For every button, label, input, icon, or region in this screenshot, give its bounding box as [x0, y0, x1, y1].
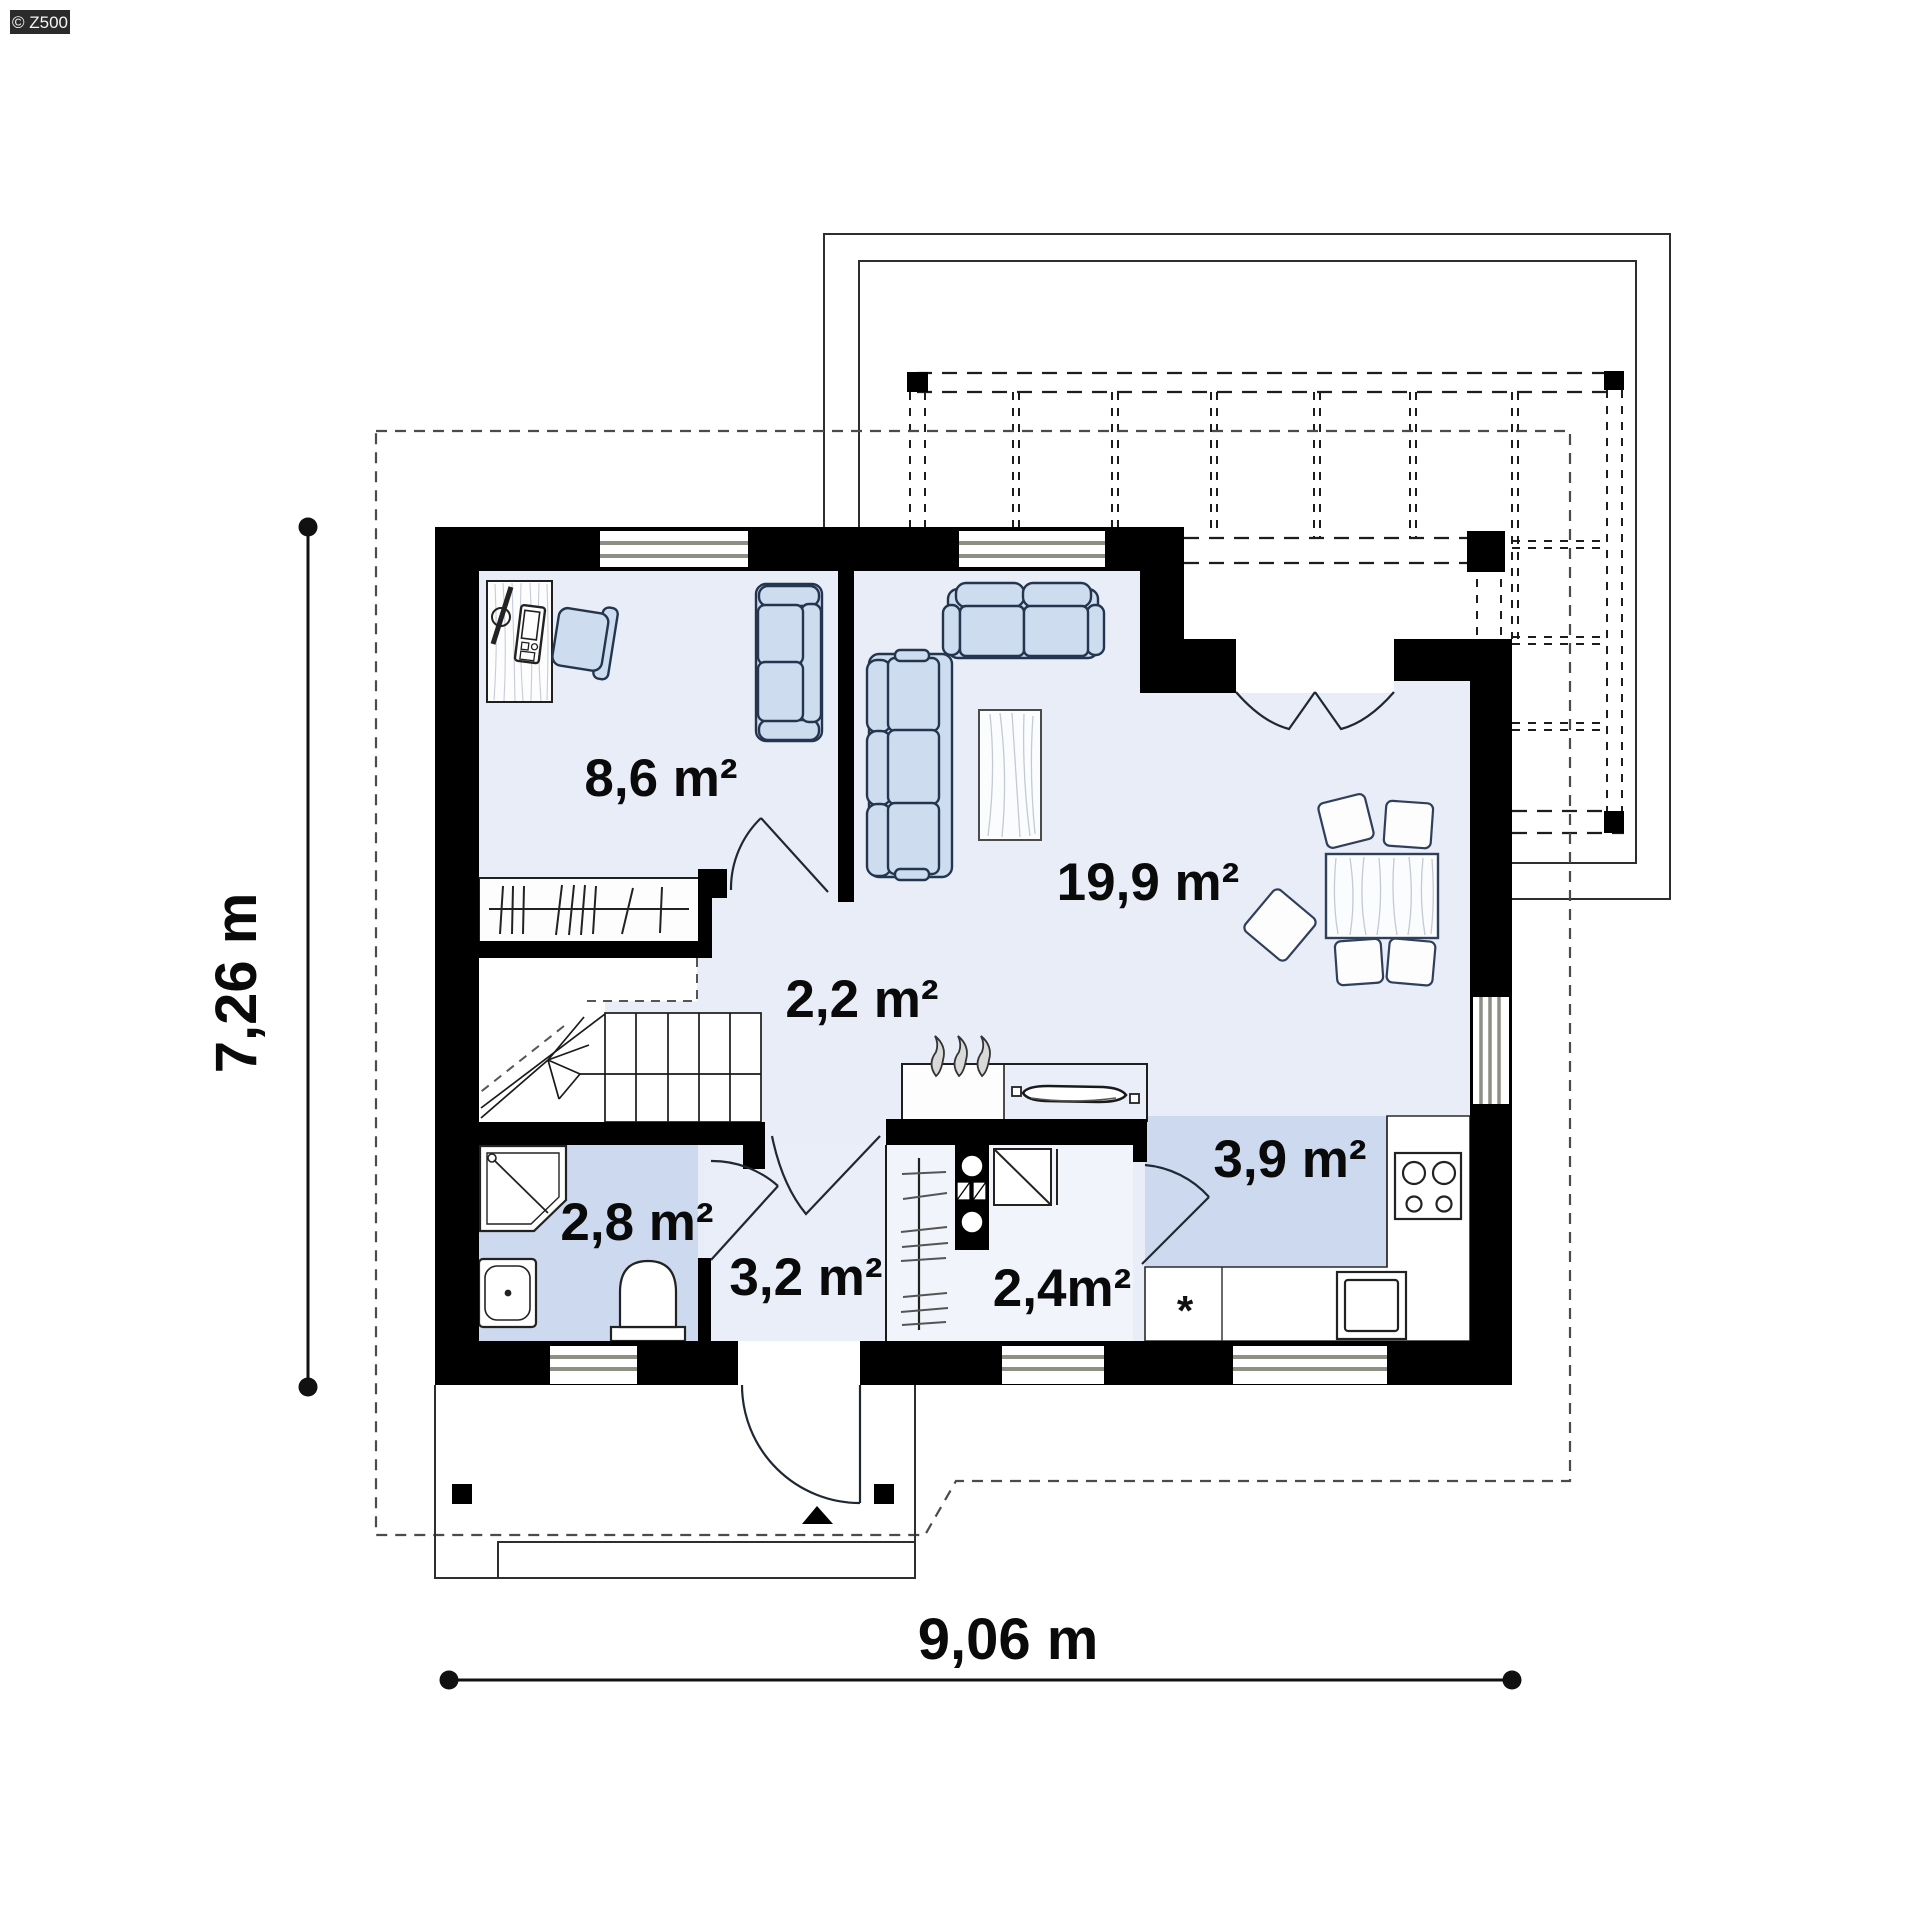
svg-text:*: * — [1177, 1287, 1194, 1334]
svg-text:2,8 m²: 2,8 m² — [560, 1193, 713, 1252]
svg-text:2,2 m²: 2,2 m² — [785, 970, 938, 1029]
svg-text:3,9 m²: 3,9 m² — [1213, 1130, 1366, 1189]
svg-text:© Z500: © Z500 — [12, 13, 68, 32]
svg-text:2,4m²: 2,4m² — [993, 1259, 1131, 1318]
svg-text:7,26 m: 7,26 m — [204, 893, 269, 1074]
svg-text:3,2 m²: 3,2 m² — [729, 1248, 882, 1307]
svg-text:19,9 m²: 19,9 m² — [1057, 853, 1240, 912]
svg-text:8,6 m²: 8,6 m² — [584, 749, 737, 808]
svg-text:9,06 m: 9,06 m — [918, 1607, 1099, 1672]
